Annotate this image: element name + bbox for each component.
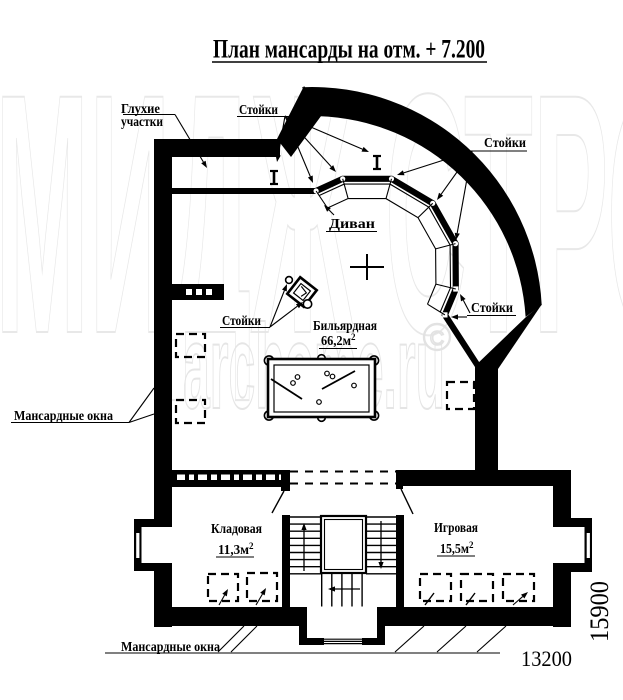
- svg-text:Игровая: Игровая: [434, 521, 478, 536]
- svg-text:13200: 13200: [521, 646, 572, 671]
- svg-text:участки: участки: [121, 115, 163, 130]
- svg-text:Мансардные окна: Мансардные окна: [14, 409, 113, 424]
- svg-text:Стойки: Стойки: [484, 136, 526, 151]
- svg-text:15900: 15900: [585, 581, 614, 642]
- svg-text:Стойки: Стойки: [239, 103, 278, 118]
- svg-text:C: C: [430, 328, 444, 350]
- svg-text:2: 2: [351, 332, 356, 342]
- svg-text:Диван: Диван: [329, 217, 375, 232]
- svg-text:2: 2: [249, 541, 254, 551]
- svg-text:11,3м: 11,3м: [218, 543, 249, 558]
- svg-text:Стойки: Стойки: [222, 314, 261, 329]
- svg-text:Кладовая: Кладовая: [211, 522, 262, 537]
- svg-text:Стойки: Стойки: [471, 301, 513, 316]
- svg-text:Бильярдная: Бильярдная: [313, 319, 377, 334]
- svg-text:66,2м: 66,2м: [321, 334, 351, 349]
- svg-text:План мансарды на отм. + 7.200: План мансарды на отм. + 7.200: [213, 35, 485, 64]
- svg-text:2: 2: [469, 540, 474, 550]
- svg-text:15,5м: 15,5м: [440, 542, 469, 557]
